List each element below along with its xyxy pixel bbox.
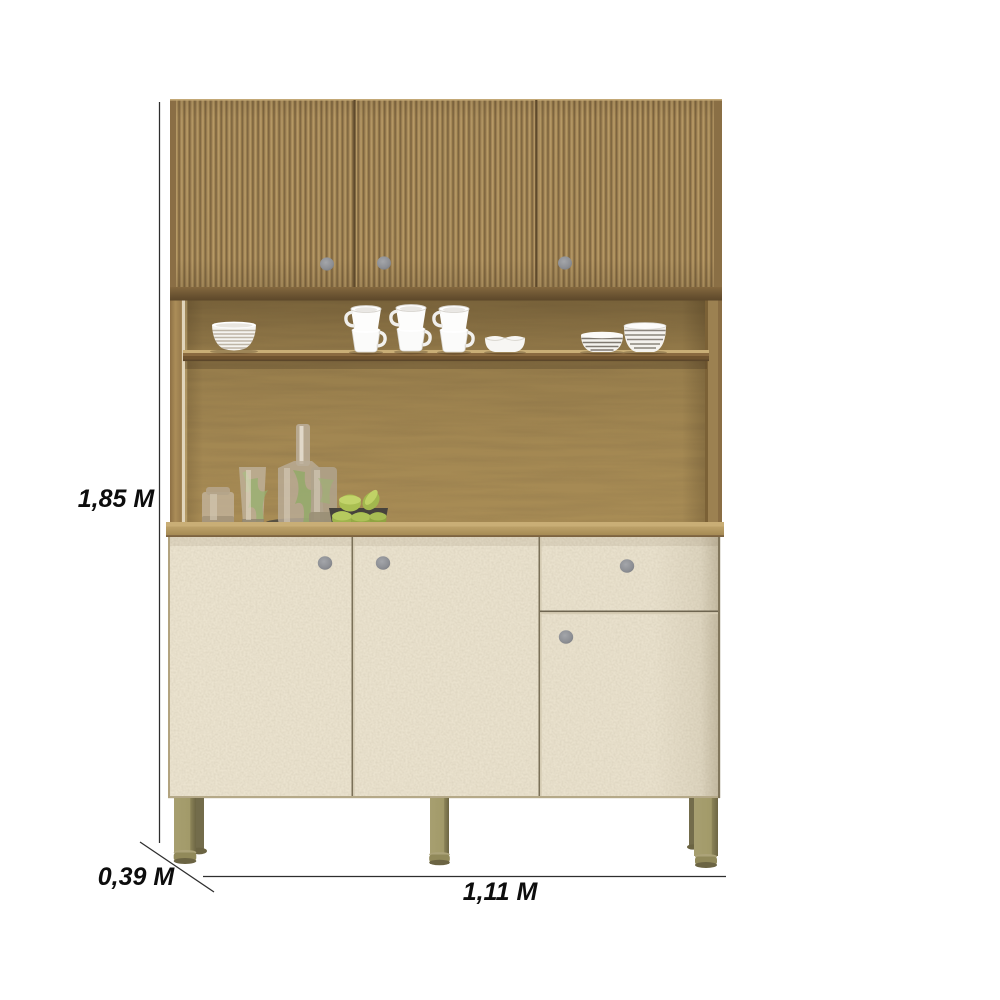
- svg-text:0,39 M: 0,39 M: [98, 863, 176, 891]
- svg-text:1,11 M: 1,11 M: [463, 878, 539, 906]
- svg-text:1,85 M: 1,85 M: [78, 485, 156, 513]
